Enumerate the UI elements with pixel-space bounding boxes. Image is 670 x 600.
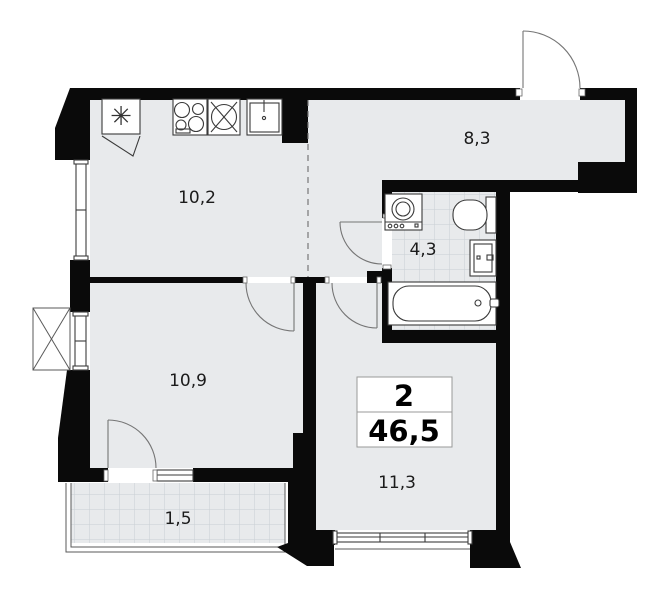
svg-text:✳: ✳ xyxy=(110,102,132,132)
kitchen-washbasin-icon xyxy=(247,99,282,135)
wall-hallway-step xyxy=(578,162,637,193)
stove-icon xyxy=(173,99,207,135)
apartment-info-box: 2 46,5 xyxy=(357,377,452,448)
air-conditioner-icon xyxy=(33,308,70,370)
wall-top-right xyxy=(580,88,637,100)
wall-left-top xyxy=(55,88,90,160)
floor-plan: ✳ xyxy=(0,0,670,600)
wall-pier xyxy=(282,88,308,143)
toilet-icon xyxy=(453,197,496,233)
hallway-area-label: 8,3 xyxy=(463,129,490,149)
wall-bathroom-bottom xyxy=(382,330,496,343)
wall-right-lower xyxy=(496,192,510,545)
washing-machine-icon xyxy=(385,194,422,230)
total-area-label: 46,5 xyxy=(368,414,440,448)
bathroom-area-label: 4,3 xyxy=(409,240,436,260)
wall-bathroom-top xyxy=(382,180,578,192)
balcony-area-label: 1,5 xyxy=(164,509,191,529)
kitchen-window xyxy=(74,160,88,260)
balcony-window xyxy=(157,470,193,481)
wall-living-bottom-right xyxy=(470,530,521,568)
wall-t-junction xyxy=(295,277,325,283)
bedroom-window xyxy=(73,312,88,370)
entrance-door xyxy=(516,31,585,96)
bedroom-area-label: 10,9 xyxy=(169,371,207,391)
kitchen-sink-icon xyxy=(208,99,240,135)
wall-left-mid xyxy=(70,260,90,312)
wall-living-bottom-left xyxy=(316,530,335,545)
bathroom-washbasin-icon xyxy=(470,240,496,276)
wall-kitchen-bedroom xyxy=(90,277,243,283)
kitchen-area-label: 10,2 xyxy=(178,188,216,208)
wall-bedroom-bottom-right xyxy=(193,468,303,482)
rooms-count-label: 2 xyxy=(394,379,414,413)
living-room-window xyxy=(333,530,472,549)
wall-left-low xyxy=(58,370,90,482)
living-area-label: 11,3 xyxy=(378,473,416,493)
bathtub-icon xyxy=(388,282,499,325)
floor-plan-page: ✳ xyxy=(0,0,670,600)
